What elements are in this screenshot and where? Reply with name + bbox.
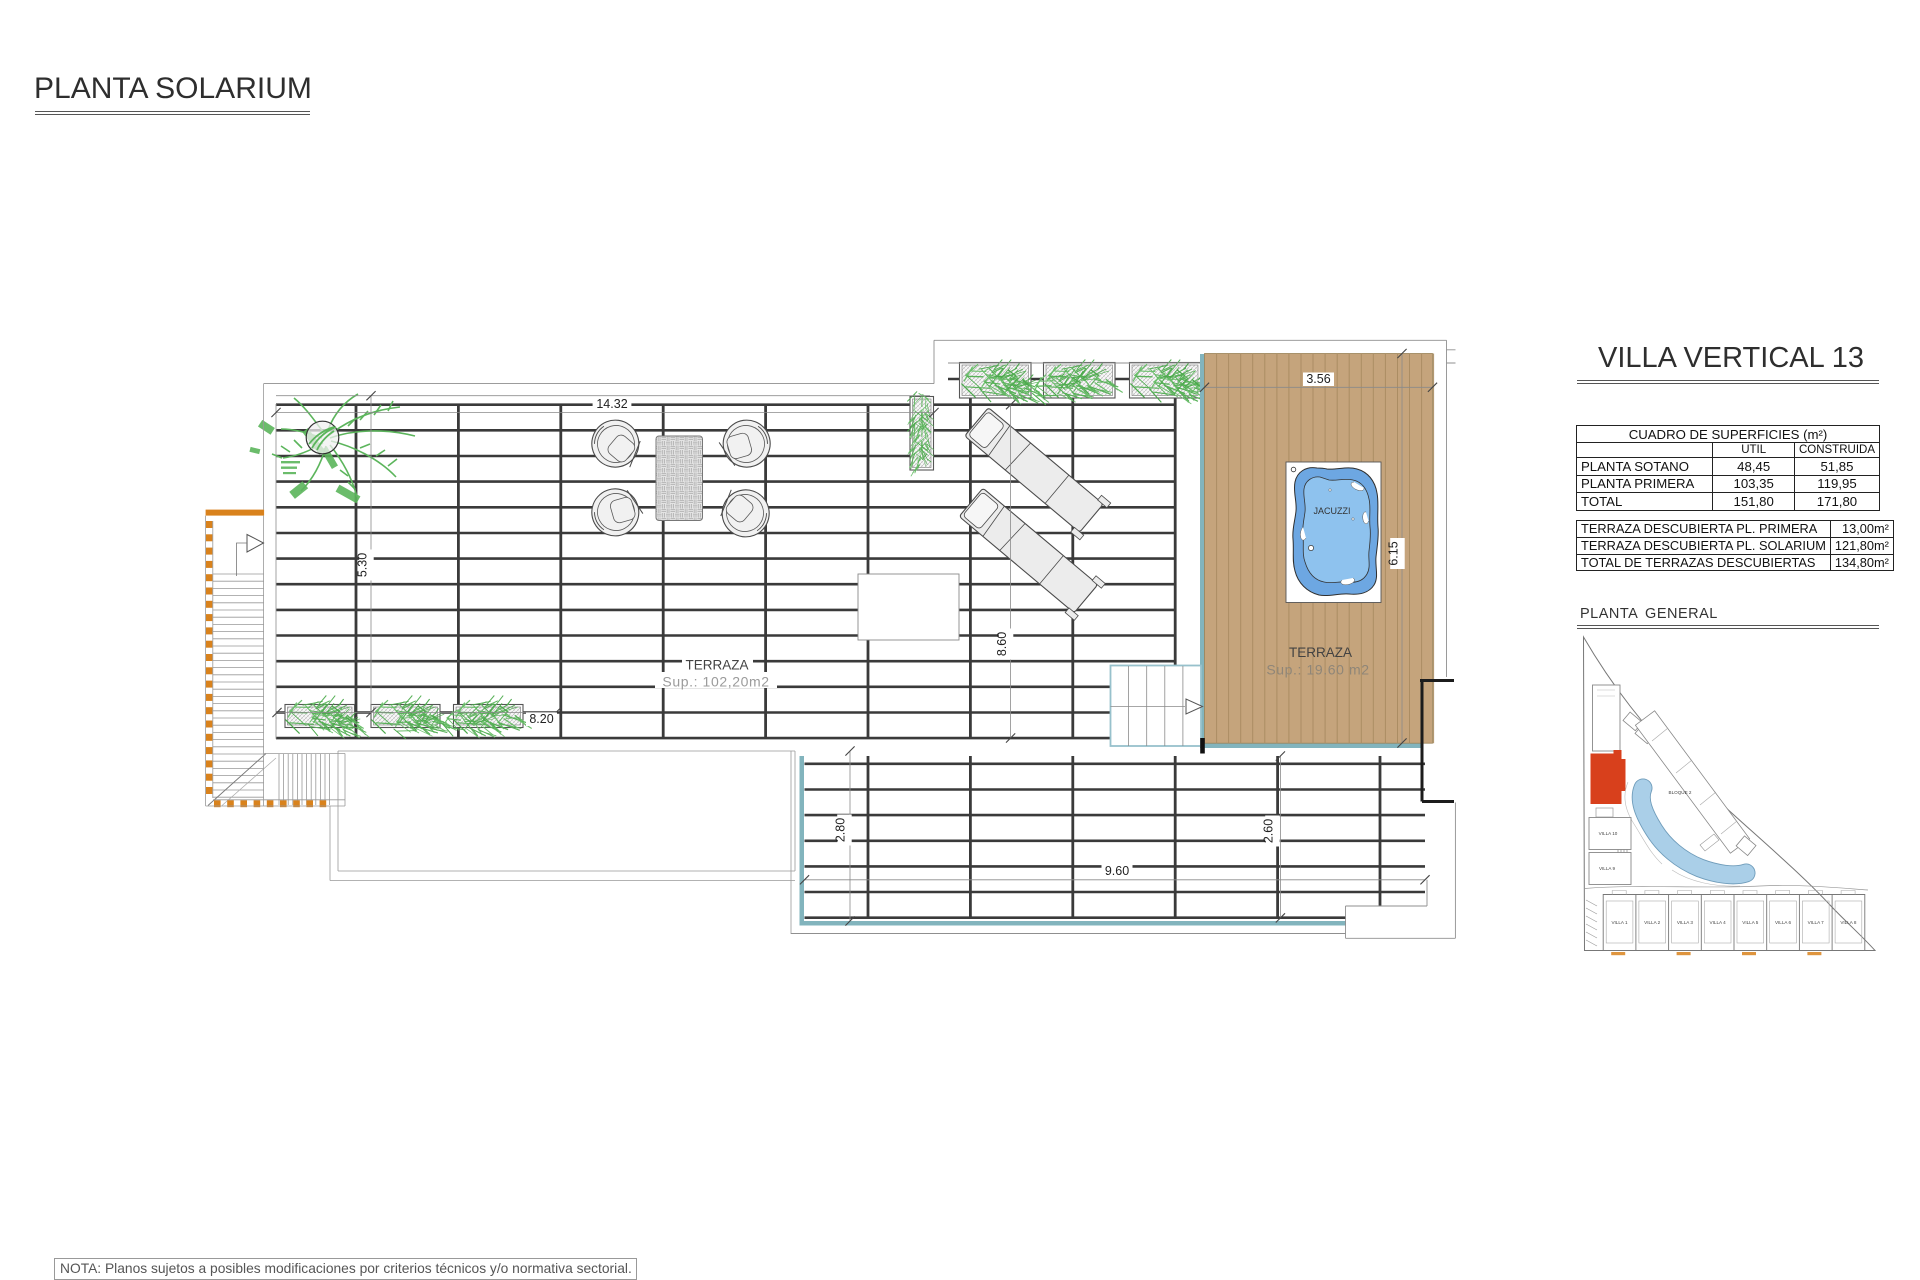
svg-text:VILLA 7: VILLA 7 — [1808, 920, 1825, 925]
svg-text:14.32: 14.32 — [596, 397, 627, 411]
svg-text:2.60: 2.60 — [1262, 819, 1276, 843]
svg-text:VILLA 1: VILLA 1 — [1611, 920, 1628, 925]
svg-text:VILLA 8: VILLA 8 — [1840, 920, 1857, 925]
svg-text:VILLA 4: VILLA 4 — [1710, 920, 1727, 925]
svg-text:VILLA 2: VILLA 2 — [1644, 920, 1661, 925]
svg-text:VILLA 5: VILLA 5 — [1742, 920, 1759, 925]
svg-text:9.60: 9.60 — [1105, 864, 1129, 878]
svg-text:JACUZZI: JACUZZI — [1314, 506, 1351, 516]
svg-text:6.15: 6.15 — [1387, 541, 1401, 565]
svg-text:TERRAZA: TERRAZA — [685, 658, 748, 673]
svg-text:8.60: 8.60 — [995, 632, 1009, 656]
svg-text:TERRAZA: TERRAZA — [1289, 645, 1352, 660]
svg-text:5.30: 5.30 — [356, 553, 370, 577]
svg-text:3.56: 3.56 — [1306, 372, 1330, 386]
svg-text:Sup.: 102,20m2: Sup.: 102,20m2 — [662, 674, 769, 690]
svg-text:8.20: 8.20 — [529, 712, 553, 726]
svg-text:VILLA 9: VILLA 9 — [1599, 866, 1616, 871]
svg-text:BLOQUE 2: BLOQUE 2 — [1669, 790, 1692, 795]
svg-text:Sup.: 19.60 m2: Sup.: 19.60 m2 — [1266, 662, 1369, 678]
svg-text:VILLA 3: VILLA 3 — [1677, 920, 1694, 925]
svg-text:VILLA 10: VILLA 10 — [1599, 831, 1618, 836]
svg-text:VILLA 6: VILLA 6 — [1775, 920, 1792, 925]
svg-text:2.80: 2.80 — [834, 818, 848, 842]
